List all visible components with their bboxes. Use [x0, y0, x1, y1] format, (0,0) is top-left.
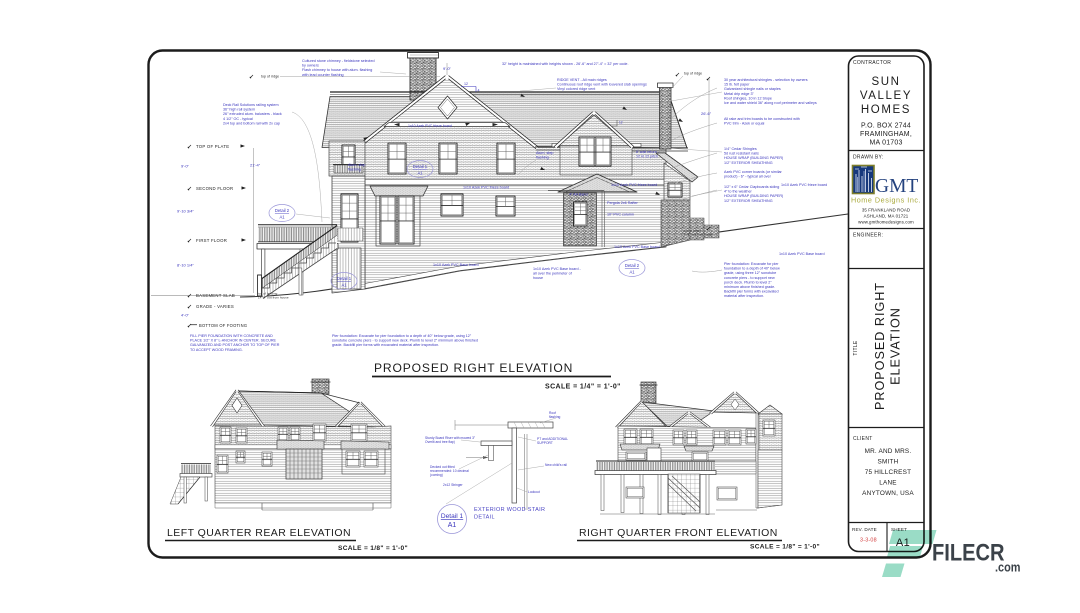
svg-text:MR. AND MRS.: MR. AND MRS. [865, 448, 912, 455]
svg-text:TOP OF PLATE: TOP OF PLATE [196, 144, 229, 149]
svg-text:A1: A1 [629, 270, 635, 275]
svg-text:SCALE = 1/4" = 1'-0": SCALE = 1/4" = 1'-0" [545, 384, 621, 391]
svg-text:1x10 Azek PVC frieze board: 1x10 Azek PVC frieze board [781, 183, 827, 187]
svg-text:1x10 Azek PVC Base board: 1x10 Azek PVC Base board [433, 263, 479, 267]
svg-text:BOTTOM OF FOOTING: BOTTOM OF FOOTING [199, 323, 247, 328]
svg-text:A1: A1 [341, 283, 347, 288]
svg-text:TITLE: TITLE [853, 340, 859, 355]
svg-text:PROPOSED RIGHT ELEVATION: PROPOSED RIGHT ELEVATION [374, 361, 573, 375]
svg-text:RIGHT QUARTER FRONT ELEVATION: RIGHT QUARTER FRONT ELEVATION [579, 527, 778, 539]
svg-text:REV. DATE: REV. DATE [852, 527, 877, 532]
svg-text:Pergola 2x6 Rafter: Pergola 2x6 Rafter [607, 201, 639, 205]
svg-text:FILECR: FILECR [932, 539, 1005, 566]
svg-text:DRAWN BY:: DRAWN BY: [853, 155, 884, 161]
svg-text:Detail 1: Detail 1 [441, 513, 464, 520]
svg-text:ASHLAND, MA 01721: ASHLAND, MA 01721 [864, 214, 909, 219]
svg-text:8'-9" out from house: 8'-9" out from house [684, 233, 713, 237]
svg-text:FRAMINGHAM,: FRAMINGHAM, [860, 131, 912, 138]
svg-text:9'-0": 9'-0" [443, 66, 452, 71]
svg-text:32' height is maintained with: 32' height is maintained with heights sh… [502, 62, 628, 66]
svg-text:BASEMENT SLAB: BASEMENT SLAB [196, 293, 235, 298]
svg-text:FIRST FLOOR: FIRST FLOOR [196, 238, 227, 243]
svg-text:.com: .com [995, 560, 1020, 575]
svg-text:Detail 1: Detail 1 [413, 164, 428, 169]
svg-text:75 HILLCREST: 75 HILLCREST [865, 469, 911, 476]
svg-text:SECOND FLOOR: SECOND FLOOR [196, 186, 233, 191]
svg-text:CLIENT: CLIENT [853, 436, 873, 442]
svg-text:ENGINEER:: ENGINEER: [853, 233, 883, 239]
svg-text:2x12 Stringer: 2x12 Stringer [443, 483, 464, 487]
svg-text:Lookout: Lookout [528, 490, 540, 494]
svg-text:1x10 Azek PVC frieze board: 1x10 Azek PVC frieze board [408, 124, 452, 128]
svg-text:GMT: GMT [875, 176, 918, 197]
svg-text:SCALE = 1/8" = 1'-0": SCALE = 1/8" = 1'-0" [750, 544, 820, 551]
svg-text:A1: A1 [448, 522, 457, 529]
svg-text:A1: A1 [279, 215, 285, 220]
svg-text:ANYTOWN, USA: ANYTOWN, USA [862, 490, 914, 497]
svg-text:EXTERIOR WOOD STAIR: EXTERIOR WOOD STAIR [474, 507, 545, 513]
svg-text:35 FRANKLAND ROAD: 35 FRANKLAND ROAD [862, 208, 910, 213]
svg-text:12: 12 [619, 121, 623, 125]
svg-text:9'-0": 9'-0" [181, 164, 190, 169]
svg-text:Deck Rail Solutions railing sy: Deck Rail Solutions railing system36" hi… [223, 103, 282, 125]
svg-text:1x10 Azek PVC frieze board: 1x10 Azek PVC frieze board [463, 186, 509, 190]
svg-text:CONTRACTOR: CONTRACTOR [853, 60, 891, 66]
svg-text:A1: A1 [417, 171, 423, 176]
svg-text:ELEVATION: ELEVATION [889, 307, 903, 385]
svg-text:3-3-08: 3-3-08 [860, 538, 877, 544]
svg-text:14'-0" out from house: 14'-0" out from house [258, 296, 289, 300]
svg-text:LEFT QUARTER REAR ELEVATION: LEFT QUARTER REAR ELEVATION [167, 527, 351, 539]
svg-text:8' wall return -12 in 12 pitch: 8' wall return -12 in 12 pitch [636, 150, 660, 159]
svg-text:SUN: SUN [871, 76, 900, 88]
svg-text:SMITH: SMITH [878, 459, 899, 466]
svg-text:www.gmthomedesigns.com: www.gmthomedesigns.com [858, 220, 914, 225]
svg-text:4'-0": 4'-0" [181, 313, 190, 318]
svg-text:VALLEY: VALLEY [860, 90, 912, 102]
svg-text:top of ridge: top of ridge [261, 75, 279, 79]
svg-text:top of ridge: top of ridge [684, 72, 702, 76]
svg-text:PROPOSED RIGHT: PROPOSED RIGHT [873, 282, 887, 410]
svg-text:12: 12 [464, 82, 468, 86]
svg-text:DETAIL: DETAIL [474, 515, 495, 521]
svg-text:LANE: LANE [879, 480, 897, 487]
svg-text:Home Designs Inc.: Home Designs Inc. [851, 196, 921, 205]
svg-text:26'-6": 26'-6" [701, 111, 712, 116]
svg-text:10" PVC column: 10" PVC column [607, 213, 634, 217]
svg-text:SCALE = 1/8" = 1'-0": SCALE = 1/8" = 1'-0" [338, 545, 408, 552]
svg-text:GRADE - VARIES: GRADE - VARIES [196, 304, 234, 309]
svg-text:Detail 2: Detail 2 [275, 208, 290, 213]
svg-text:8'-10 1/4": 8'-10 1/4" [177, 263, 194, 268]
svg-text:1x10 Azek PVC Base board: 1x10 Azek PVC Base board [779, 252, 825, 256]
svg-text:21'-4": 21'-4" [250, 163, 261, 168]
svg-text:MA 01703: MA 01703 [869, 140, 902, 147]
svg-text:4: 4 [478, 89, 480, 93]
svg-text:Detail 2: Detail 2 [625, 263, 640, 268]
svg-text:Detail 1: Detail 1 [337, 276, 352, 281]
svg-text:New child's rail: New child's rail [545, 463, 567, 467]
svg-text:P.O. BOX 2744: P.O. BOX 2744 [861, 123, 911, 130]
svg-text:HOMES: HOMES [861, 104, 911, 116]
svg-text:4" AA Band: 4" AA Band [569, 193, 588, 197]
svg-text:9'-10 3/4": 9'-10 3/4" [177, 209, 194, 214]
svg-text:1x10 Azek PVC Base board: 1x10 Azek PVC Base board [614, 245, 660, 249]
svg-text:1x10 Azek PVC frieze board: 1x10 Azek PVC frieze board [611, 183, 657, 187]
